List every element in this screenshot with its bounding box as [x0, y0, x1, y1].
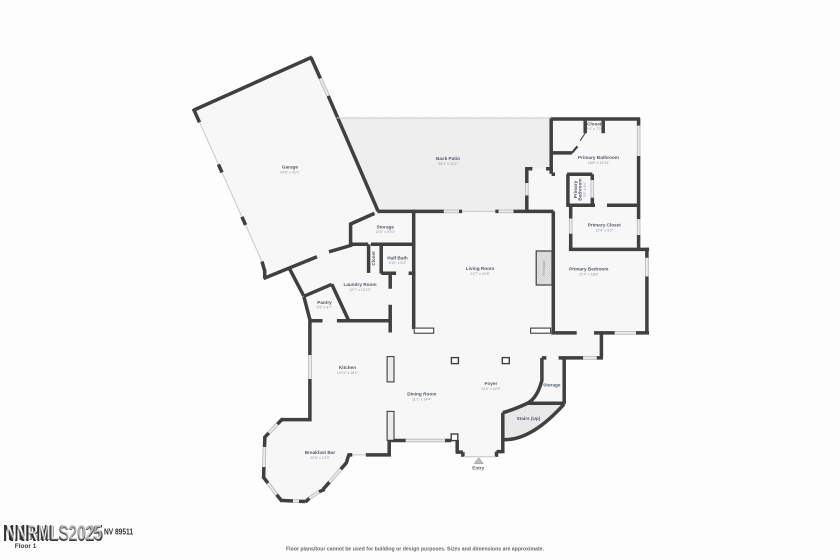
svg-text:Fireplace: Fireplace: [542, 261, 546, 276]
svg-text:Bathroom: Bathroom: [578, 178, 583, 200]
svg-text:Kitchen: Kitchen: [339, 365, 356, 370]
svg-text:Primary Bathroom: Primary Bathroom: [578, 155, 619, 160]
svg-text:11'1" x 14'4": 11'1" x 14'4": [412, 398, 432, 402]
svg-text:16'8" x 13'10": 16'8" x 13'10": [588, 161, 610, 165]
svg-text:5'10" x 5'3": 5'10" x 5'3": [389, 261, 407, 265]
svg-text:Entry: Entry: [472, 466, 484, 471]
svg-text:23'6" x 13'3": 23'6" x 13'3": [310, 456, 330, 460]
svg-text:Storage: Storage: [543, 383, 561, 388]
svg-text:11'6" x 5'10": 11'6" x 5'10": [375, 230, 395, 234]
svg-text:5'5" x 4'7": 5'5" x 4'7": [317, 305, 333, 309]
svg-text:21'7" x 22'6": 21'7" x 22'6": [470, 272, 490, 276]
svg-text:Laundry Room: Laundry Room: [343, 282, 376, 287]
svg-text:Half Bath: Half Bath: [387, 255, 408, 260]
svg-text:3'5" x 9'6": 3'5" x 9'6": [583, 181, 587, 197]
svg-text:Garage: Garage: [282, 164, 299, 169]
svg-text:Primary Closet: Primary Closet: [588, 222, 622, 227]
svg-text:Floor 1: Floor 1: [15, 543, 37, 550]
svg-text:12'7" x 13'10": 12'7" x 13'10": [349, 288, 371, 292]
svg-text:38'1" x 11'2": 38'1" x 11'2": [438, 162, 458, 166]
svg-text:Dining Room: Dining Room: [407, 392, 436, 397]
svg-text:Closet: Closet: [587, 122, 602, 127]
svg-text:14'5" x 22'9": 14'5" x 22'9": [481, 387, 501, 391]
svg-text:3'4" x 7'2": 3'4" x 7'2": [586, 127, 602, 131]
svg-text:Storage: Storage: [376, 224, 394, 229]
svg-text:Closet: Closet: [371, 251, 376, 266]
svg-text:Pantry: Pantry: [317, 300, 332, 305]
svg-text:Breakfast Bar: Breakfast Bar: [305, 450, 336, 455]
svg-text:24'6" x 41'1": 24'6" x 41'1": [280, 170, 300, 174]
svg-text:Floor plans/tour cannot be use: Floor plans/tour cannot be used for buil…: [286, 547, 544, 553]
svg-text:NV 89511: NV 89511: [104, 527, 133, 537]
svg-text:Primary Bedroom: Primary Bedroom: [569, 266, 608, 271]
svg-text:Foyer: Foyer: [485, 381, 498, 386]
svg-text:22'4" x 18'8": 22'4" x 18'8": [579, 272, 599, 276]
svg-text:Back Patio: Back Patio: [436, 156, 460, 161]
svg-text:Stairs (Up): Stairs (Up): [517, 416, 541, 421]
svg-text:12'4" x 9'2": 12'4" x 9'2": [595, 228, 613, 232]
svg-text:14'11" x 18'1": 14'11" x 18'1": [337, 371, 359, 375]
svg-text:Living Room: Living Room: [466, 266, 494, 271]
